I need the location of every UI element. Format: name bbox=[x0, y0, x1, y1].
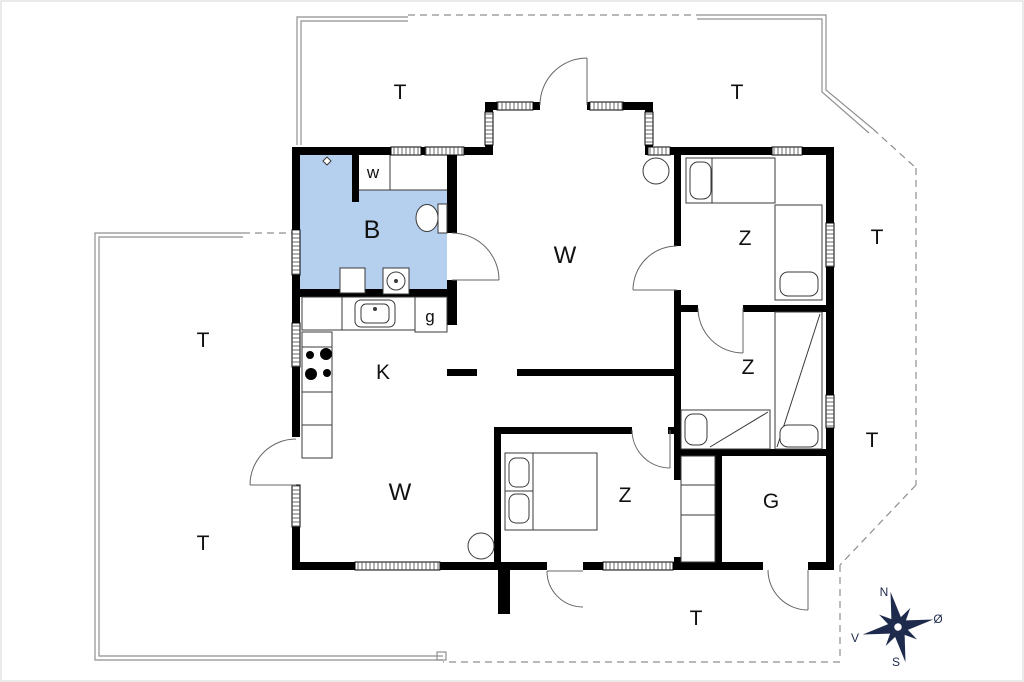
window bbox=[648, 147, 670, 155]
terrace-line bbox=[301, 21, 408, 145]
terrace-label: T bbox=[866, 429, 879, 452]
compass-rose-icon: N Ø S V bbox=[851, 584, 943, 669]
bathroom-cabinet bbox=[340, 268, 365, 293]
living-room-bottom-label: W bbox=[389, 479, 412, 506]
window bbox=[826, 223, 834, 267]
window bbox=[645, 112, 653, 145]
bedroom-bottom-label: Z bbox=[619, 484, 632, 507]
compass-south-label: S bbox=[892, 655, 900, 669]
bathroom-closet-label: w bbox=[366, 163, 380, 182]
wood-stove-bottom-icon bbox=[468, 533, 494, 559]
window bbox=[355, 562, 440, 570]
terrace-label: T bbox=[731, 81, 744, 104]
terrace-line bbox=[697, 15, 873, 129]
kitchen-sink-basin bbox=[361, 304, 389, 323]
terrace-line bbox=[697, 19, 869, 133]
dashed-line bbox=[873, 129, 916, 168]
bedroom-bottom-door-arc bbox=[632, 430, 670, 468]
bedroom-top-right-door-arc bbox=[633, 246, 677, 290]
entrance-door-arc bbox=[540, 58, 587, 105]
storage-door-arc bbox=[768, 570, 808, 610]
terrace-label: T bbox=[197, 532, 210, 555]
compass-west-label: V bbox=[851, 631, 859, 645]
window bbox=[772, 147, 802, 155]
storage-label: G bbox=[763, 490, 779, 513]
bunk-bed bbox=[775, 312, 822, 449]
toilet-bowl bbox=[416, 205, 438, 232]
south-terrace-door-arc bbox=[547, 571, 583, 607]
closet-shelves bbox=[681, 456, 715, 562]
terrace-label: T bbox=[690, 607, 703, 630]
terrace-label: T bbox=[394, 81, 407, 104]
compass-east-label: Ø bbox=[933, 612, 942, 626]
bed-single bbox=[686, 158, 775, 203]
sink-faucet bbox=[374, 308, 377, 311]
living-room-top-label: W bbox=[554, 242, 577, 269]
window bbox=[292, 230, 300, 275]
bunk-bed bbox=[681, 410, 770, 449]
bedroom-middle-right-label: Z bbox=[742, 356, 755, 379]
window bbox=[425, 147, 464, 155]
toilet-tank bbox=[438, 204, 447, 233]
window bbox=[485, 112, 493, 145]
window bbox=[292, 323, 300, 367]
window bbox=[590, 102, 623, 110]
terrace-label: T bbox=[197, 329, 210, 352]
bed-single bbox=[775, 205, 822, 300]
window bbox=[292, 485, 300, 527]
wood-stove-top-icon bbox=[643, 158, 669, 184]
bathroom-label: B bbox=[364, 216, 381, 244]
floorplan-drawing: T T T T T T T B w W W K g Z Z Z G N bbox=[0, 0, 1024, 682]
double-bed bbox=[505, 453, 597, 530]
compass-north-label: N bbox=[880, 585, 889, 599]
bathroom-door-arc bbox=[452, 233, 499, 280]
window bbox=[603, 562, 673, 570]
floorplan-page: T T T T T T T B w W W K g Z Z Z G N bbox=[0, 0, 1024, 682]
dashed-line bbox=[840, 485, 916, 565]
shower-drain-center bbox=[395, 280, 398, 283]
terrace-label: T bbox=[871, 226, 884, 249]
west-terrace-door-arc bbox=[250, 439, 296, 485]
bedroom-middle-right-door-arc bbox=[698, 308, 743, 353]
window bbox=[826, 395, 834, 428]
kitchen-label: K bbox=[376, 361, 390, 384]
bedroom-top-right-label: Z bbox=[739, 227, 752, 250]
guest-wc-label: g bbox=[425, 307, 434, 326]
window bbox=[391, 147, 421, 155]
window bbox=[497, 102, 533, 110]
terrace-line bbox=[297, 17, 408, 145]
